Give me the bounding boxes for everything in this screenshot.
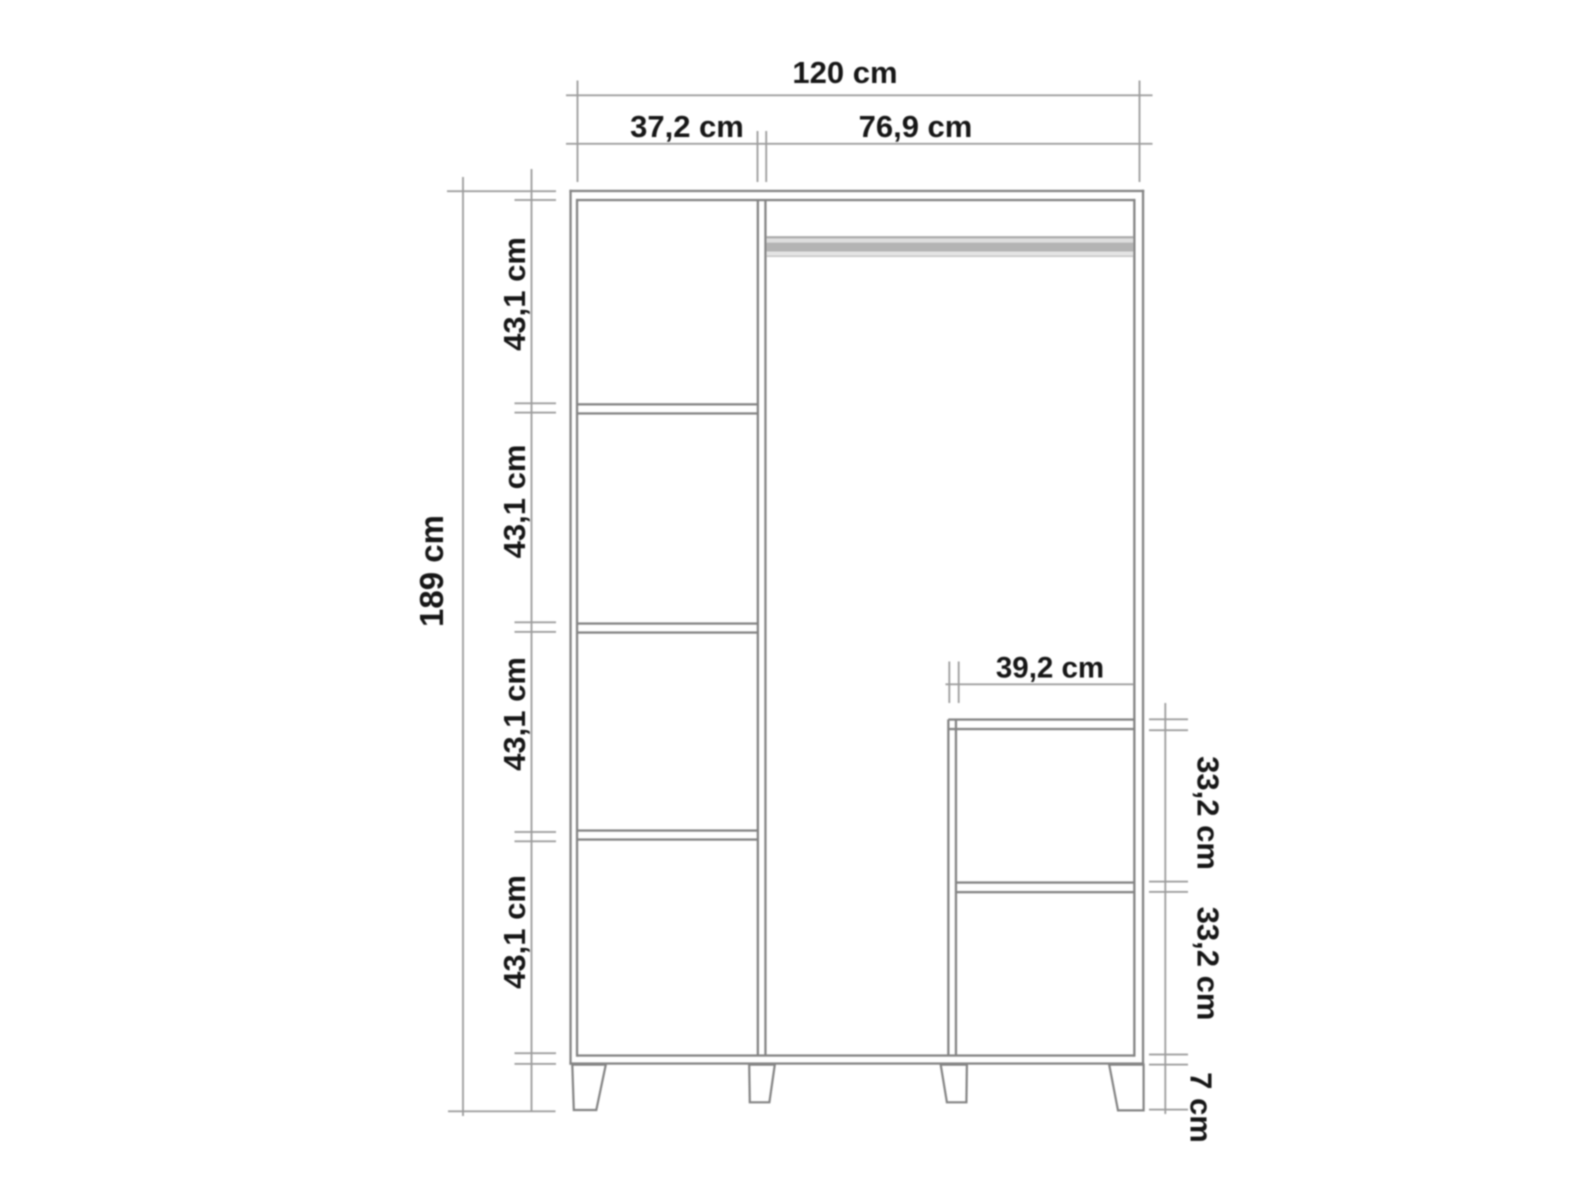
svg-text:7 cm: 7 cm <box>1183 1072 1218 1143</box>
svg-text:43,1 cm: 43,1 cm <box>497 657 532 771</box>
svg-text:76,9 cm: 76,9 cm <box>859 109 973 144</box>
svg-text:37,2 cm: 37,2 cm <box>630 109 744 144</box>
svg-text:33,2 cm: 33,2 cm <box>1190 756 1225 870</box>
svg-text:43,1 cm: 43,1 cm <box>497 237 532 351</box>
svg-text:189 cm: 189 cm <box>413 515 450 627</box>
svg-text:33,2 cm: 33,2 cm <box>1190 907 1225 1021</box>
svg-text:43,1 cm: 43,1 cm <box>497 875 532 989</box>
svg-text:43,1 cm: 43,1 cm <box>497 445 532 559</box>
svg-text:39,2 cm: 39,2 cm <box>996 651 1104 684</box>
svg-text:120 cm: 120 cm <box>792 55 897 90</box>
